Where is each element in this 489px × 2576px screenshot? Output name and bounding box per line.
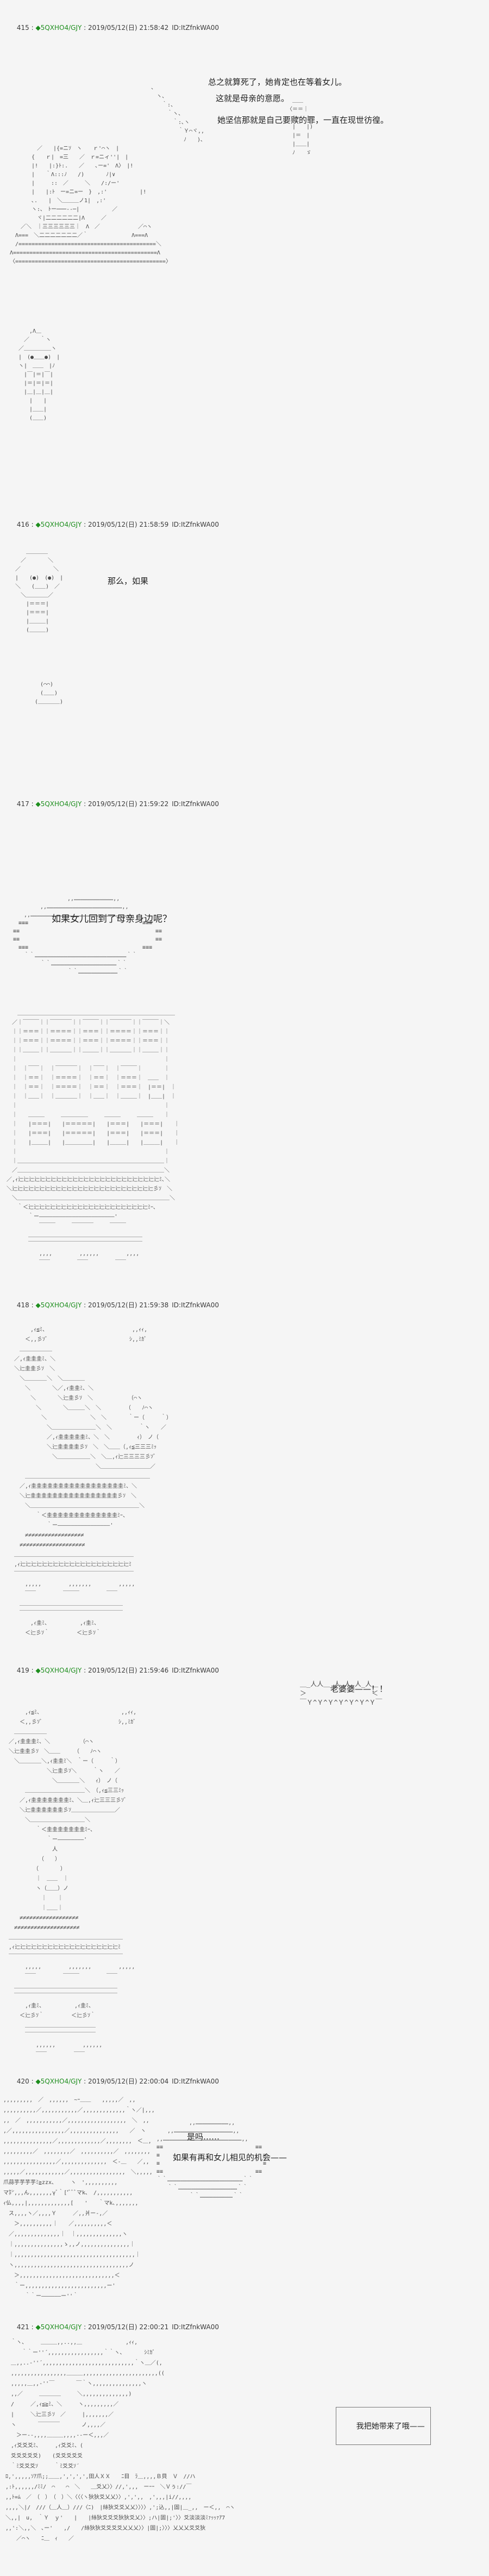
aa-dotted-bubble: ,,………………………………,, ,,…………………………………………………………: [13, 895, 162, 976]
header-separator: :: [29, 1301, 36, 1309]
post-date: 2019/05/12(日) 21:59:22: [88, 800, 168, 808]
dialogue-line: 如果有再和女儿相见的机会——: [173, 2151, 287, 2163]
tripcode: ◆5QXHO4/GJY: [35, 2078, 81, 2085]
post-number: 416: [17, 521, 29, 528]
aa-standing-figure: ＿＿ 〈＝＝｜ |ー | | |) |＝ | |＿＿| ﾉ ゞ: [287, 97, 313, 158]
post-date: 2019/05/12(日) 21:59:46: [88, 1667, 168, 1674]
post-header: 420 : ◆5QXHO4/GJY : 2019/05/12(日) 22:00:…: [4, 2069, 219, 2093]
aa-falling-scene: ,ｨ≦ﾐ、 ,,ｨｨ, ＜,,彡ｿﾞ ｼ,,ﾐｶﾞ ＿＿＿＿＿＿ ／,ｨ圭圭圭ﾐ…: [9, 1325, 172, 1638]
post-number: 420: [17, 2078, 29, 2085]
speech-box: 我把她带来了哦——: [336, 2407, 431, 2445]
post-id: ID:ItZfnkWA00: [172, 24, 219, 32]
tripcode: ◆5QXHO4/GJY: [35, 521, 81, 528]
header-separator: :: [29, 2078, 36, 2085]
aa-hooded-creature: ,Λ＿ ／ ｀ヽ ／＿＿＿＿＿ヽ | (●＿＿●) | ヽ| ＿＿ |ﾉ |￣|…: [13, 327, 60, 423]
post-id: ID:ItZfnkWA00: [172, 800, 219, 808]
header-separator: :: [81, 2078, 88, 2085]
thread-page: 415 : ◆5QXHO4/GJY : 2019/05/12(日) 21:58:…: [0, 0, 489, 2576]
header-separator: :: [81, 1301, 88, 1309]
dialogue-line: 总之就算死了，她肯定也在等着女儿。: [208, 76, 347, 88]
header-separator: :: [81, 1667, 88, 1674]
aa-crowd-scene: ｀ヽ、 ＿＿＿,,..,,＿ ,ｨｨ, ｀｀ー''´,,,,,,,,,,,,,,…: [5, 2337, 235, 2544]
post-id: ID:ItZfnkWA00: [172, 1667, 219, 1674]
dialogue-line: 是吗……: [187, 2131, 220, 2142]
tripcode: ◆5QXHO4/GJY: [35, 800, 81, 808]
dialogue-line: 我把她带来了哦——: [356, 2422, 425, 2431]
post-number: 421: [17, 2323, 29, 2331]
dialogue-line: 这就是母亲的意愿。: [216, 92, 289, 104]
post-number: 415: [17, 24, 29, 32]
post-id: ID:ItZfnkWA00: [172, 2323, 219, 2331]
post-id: ID:ItZfnkWA00: [172, 521, 219, 528]
dialogue-line: 如果女儿回到了母亲身边呢？: [52, 911, 172, 925]
dialogue-line: 老婆婆——！！: [330, 1683, 387, 1694]
post-id: ID:ItZfnkWA00: [172, 2078, 219, 2085]
post-header: 417 : ◆5QXHO4/GJY : 2019/05/12(日) 21:59:…: [4, 791, 219, 816]
header-separator: :: [81, 521, 88, 528]
tripcode: ◆5QXHO4/GJY: [35, 1667, 81, 1674]
tripcode: ◆5QXHO4/GJY: [35, 2323, 81, 2331]
header-separator: :: [29, 521, 36, 528]
post-header: 416 : ◆5QXHO4/GJY : 2019/05/12(日) 21:58:…: [4, 512, 219, 537]
header-separator: :: [29, 24, 36, 32]
aa-hooded-creature: ＿＿＿＿ ／ ＼ ／ ＼ | (●) (●) | ＼ (＿＿) ／ ＼＿＿＿＿／…: [15, 548, 63, 635]
header-separator: :: [81, 24, 88, 32]
post-header: 418 : ◆5QXHO4/GJY : 2019/05/12(日) 21:59:…: [4, 1293, 219, 1317]
header-separator: :: [81, 2323, 88, 2331]
post-number: 417: [17, 800, 29, 808]
tripcode: ◆5QXHO4/GJY: [35, 1301, 81, 1309]
post-header: 415 : ◆5QXHO4/GJY : 2019/05/12(日) 21:58:…: [4, 15, 219, 40]
post-number: 418: [17, 1301, 29, 1309]
aa-mother-on-dais: ／ |{=ニｿ ヽ ｒ'⌒ヽ | { ｒ| =三 ／ ｒ=ニィ''| | |! …: [10, 145, 171, 266]
post-date: 2019/05/12(日) 21:59:38: [88, 1301, 168, 1309]
aa-running-scene: ,ｨ≦ﾐ、 ,,ｨｨ, ＜,,彡ｿﾞ ｼ,,ﾐｶﾞ ＿＿＿＿＿＿ ／,ｨ圭圭圭ﾐ…: [9, 1708, 136, 2060]
header-separator: :: [29, 2323, 36, 2331]
post-date: 2019/05/12(日) 21:58:42: [88, 24, 168, 32]
post-number: 419: [17, 1667, 29, 1674]
tripcode: ◆5QXHO4/GJY: [35, 24, 81, 32]
post-header: 421 : ◆5QXHO4/GJY : 2019/05/12(日) 22:00:…: [4, 2315, 219, 2339]
post-date: 2019/05/12(日) 22:00:04: [88, 2078, 168, 2085]
header-separator: :: [81, 800, 88, 808]
header-separator: :: [29, 800, 36, 808]
aa-grass-lady-scene: ,,,,,,,,, ／ ,,,,,, ~ｰ＿＿ ,,,,,／ ,, ,,,,,,…: [3, 2095, 155, 2301]
aa-storeroom-scene: ＿＿＿＿＿＿＿＿＿＿＿＿＿＿＿＿＿＿＿＿＿＿＿＿＿＿＿＿＿ ／｜￣￣￣｜｜￣￣￣…: [7, 1009, 179, 1268]
dialogue-line: 那么，如果: [108, 575, 148, 587]
post-id: ID:ItZfnkWA00: [172, 1301, 219, 1309]
post-date: 2019/05/12(日) 21:58:59: [88, 521, 168, 528]
header-separator: :: [29, 1667, 36, 1674]
post-date: 2019/05/12(日) 22:00:21: [88, 2323, 168, 2331]
aa-blob: (⌒⌒) (＿＿) (＿＿＿＿): [35, 681, 63, 707]
aa-ghost-strands: 、 ヽ、 ｀:、 ｀ヽ、 ｀:､ヽ ｀Ｙ⌒ヾ,, ﾉ )､: [151, 84, 204, 145]
post-header: 419 : ◆5QXHO4/GJY : 2019/05/12(日) 21:59:…: [4, 1658, 219, 1682]
